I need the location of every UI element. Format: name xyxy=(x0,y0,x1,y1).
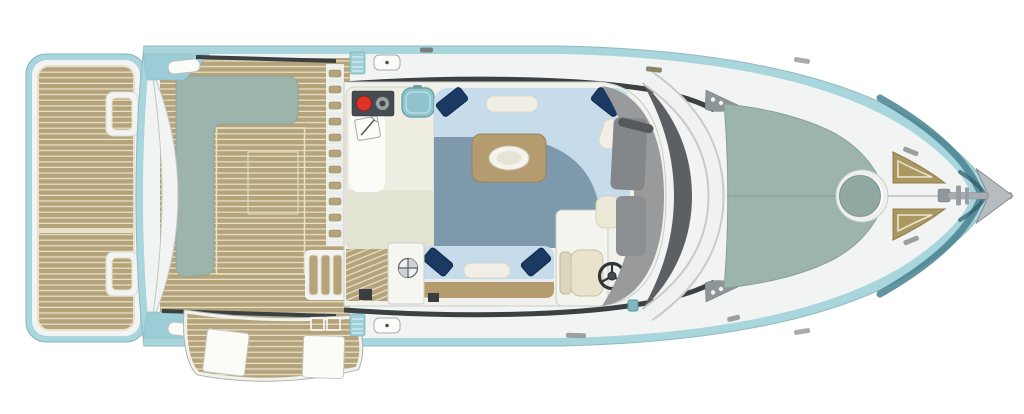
side-terrace xyxy=(186,312,361,379)
bench-base xyxy=(421,282,554,298)
pedestal-cabinet xyxy=(388,243,424,304)
platform-step-pad-bottom xyxy=(112,258,132,290)
swim-platform-seam xyxy=(38,228,134,233)
step-tread-strip xyxy=(326,64,344,246)
terrace-panel-left xyxy=(202,329,249,377)
terrace-hinge-pad-2 xyxy=(327,318,340,330)
cockpit xyxy=(143,54,369,338)
stove-knob-center xyxy=(380,101,386,107)
terrace-hinge-pad-1 xyxy=(311,318,324,330)
gunwale-fitting-bottom xyxy=(794,328,811,335)
helm-side-vent xyxy=(628,300,638,311)
deck-cleat-bottom xyxy=(374,318,400,333)
deck-cleat-top xyxy=(374,55,400,70)
helm-seat-cushion xyxy=(571,250,603,296)
anchor-crossbar-2 xyxy=(965,188,969,205)
dashboard-lower-panel xyxy=(616,196,646,256)
hull-vent-top xyxy=(420,48,433,53)
table-dish-inner xyxy=(497,151,522,165)
swim-platform xyxy=(26,54,146,342)
gunwale-fitting-top xyxy=(794,57,811,64)
bench-seam xyxy=(421,279,554,282)
galley-floor-hatch xyxy=(359,289,372,300)
helm-seat-back xyxy=(560,252,571,294)
steering-wheel-hub xyxy=(608,272,616,280)
bench-bolster xyxy=(464,263,510,278)
bench-floor-hatch xyxy=(428,293,439,302)
anchor-crossbar-1 xyxy=(956,186,961,206)
aft-teak-inset xyxy=(217,128,305,274)
boarding-pad-bottom xyxy=(350,314,365,336)
yacht-deck-plan-canvas xyxy=(0,0,1024,414)
stern-cleat-top xyxy=(167,58,200,74)
sofa-bolster xyxy=(486,96,538,112)
coffee-table xyxy=(472,134,546,182)
yacht-deck-plan xyxy=(0,0,1024,414)
bow-hatch xyxy=(840,176,881,217)
terrace-panel-right xyxy=(302,335,344,378)
platform-step-pad-top xyxy=(112,98,132,130)
galley-counter-lower xyxy=(346,190,434,249)
aft-bench xyxy=(421,246,554,302)
boarding-pad-top xyxy=(350,52,365,74)
chart-notepad xyxy=(354,116,380,141)
stove-burner-red xyxy=(357,96,372,111)
gunwale-step-bottom xyxy=(566,333,586,339)
